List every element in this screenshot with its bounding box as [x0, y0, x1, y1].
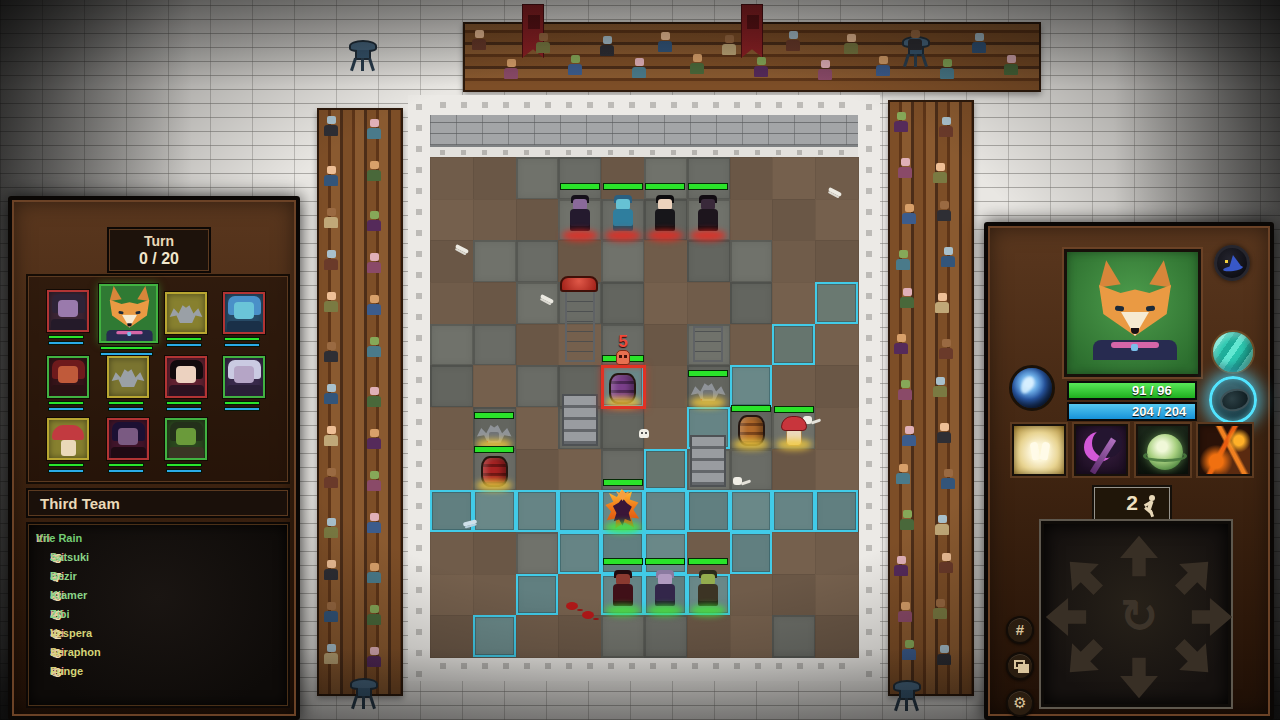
combat-log[interactable]: Itri : Vile RainItri -5 ⊕ SatsukiItri -7…	[26, 522, 290, 708]
movement-highlight-tile[interactable]	[558, 490, 601, 532]
floor-tile	[687, 282, 731, 325]
turn-counter: Turn 0 / 20	[107, 227, 211, 273]
floor-tile	[430, 615, 474, 658]
floor-tile	[601, 240, 645, 283]
skullbone-decoration	[733, 477, 749, 487]
portrait-gargoyle-a[interactable]	[165, 292, 207, 334]
hp-value: 91 / 96	[1132, 383, 1172, 398]
move-arrow-n[interactable]	[1118, 535, 1160, 577]
sphere-ability-icon[interactable]	[1136, 424, 1190, 476]
portrait-hp-bar	[166, 401, 202, 405]
wizard-hat-button[interactable]	[1214, 245, 1250, 281]
move-arrow-s[interactable]	[1118, 657, 1160, 699]
log-entry: Itri -5 ⊕ Zibi	[50, 608, 290, 624]
floor-tile	[815, 574, 859, 617]
active-character-portrait[interactable]	[1064, 249, 1201, 377]
arena-border-bottom	[430, 657, 858, 681]
arena-back-wall	[430, 115, 858, 147]
target-info: 5	[596, 335, 650, 365]
floor-tile	[772, 449, 816, 492]
damage-preview-number: 5	[596, 332, 650, 352]
spectator-stand-top	[463, 22, 1041, 92]
floor-tile	[687, 449, 731, 492]
floor-tile	[558, 615, 602, 658]
floor-tile	[644, 240, 688, 283]
floor-tile	[772, 282, 816, 325]
floor-tile	[644, 282, 688, 325]
character-control-panel: 91 / 96 204 / 204 2 ↻ # ⚙	[984, 222, 1274, 720]
floor-tile	[473, 574, 517, 617]
floor-tile	[815, 615, 859, 658]
wizard-hat-brim	[1223, 265, 1244, 273]
portrait-hp-bar	[224, 401, 260, 405]
focus-orb-icon[interactable]	[1209, 376, 1257, 424]
movement-highlight-tile[interactable]	[601, 490, 644, 532]
floor-tile	[558, 199, 602, 242]
move-arrow-w[interactable]	[1045, 596, 1087, 638]
floor-tile	[516, 282, 560, 325]
floor-tile	[815, 199, 859, 242]
portrait-pale-elf[interactable]	[223, 356, 265, 398]
floor-tile	[644, 199, 688, 242]
floor-tile	[558, 365, 602, 408]
movement-highlight-tile[interactable]	[730, 532, 773, 574]
floor-tile	[687, 615, 731, 658]
floor-tile	[815, 532, 859, 575]
floor-tile	[772, 615, 816, 658]
portrait-mp-bar	[224, 343, 260, 347]
floor-tile	[601, 615, 645, 658]
floor-tile	[430, 324, 474, 367]
floor-tile	[644, 324, 688, 367]
portrait-hp-bar	[48, 335, 84, 339]
floor-tile	[430, 407, 474, 450]
floor-tile	[473, 240, 517, 283]
axe-ability-icon[interactable]	[1074, 424, 1128, 476]
floor-tile	[516, 324, 560, 367]
skullbone-decoration	[803, 416, 819, 426]
portrait-siren[interactable]	[223, 292, 265, 334]
floor-tile	[430, 574, 474, 617]
portrait-vampire[interactable]	[107, 418, 149, 460]
movement-highlight-tile[interactable]	[687, 490, 730, 532]
floor-tile	[516, 157, 560, 200]
floor-tile	[516, 532, 560, 575]
floor-tile	[815, 240, 859, 283]
movement-highlight-tile[interactable]	[772, 490, 815, 532]
movement-highlight-tile[interactable]	[558, 532, 601, 574]
game-screen: 5 Turn 0 / 20 Third Team Itri : Vile Rai…	[0, 0, 1280, 720]
floor-tile	[730, 324, 774, 367]
floor-tile	[473, 365, 517, 408]
floor-tile	[772, 407, 816, 450]
floor-tile	[473, 532, 517, 575]
blood-decoration	[582, 611, 594, 619]
hp-bar: 91 / 96	[1067, 381, 1197, 400]
movement-points-box: 2	[1094, 487, 1170, 521]
wizard-hat-star	[1225, 260, 1228, 263]
move-arrow-se[interactable]	[1164, 628, 1223, 687]
floor-tile	[772, 199, 816, 242]
floor-tile	[687, 240, 731, 283]
floor-tile	[558, 282, 602, 325]
portrait-mp-bar	[108, 469, 144, 473]
floor-tile	[430, 365, 474, 408]
floor-tile	[644, 365, 688, 408]
movement-highlight-tile[interactable]	[644, 449, 687, 491]
movement-highlight-tile[interactable]	[601, 532, 644, 574]
movement-highlight-tile[interactable]	[644, 574, 687, 616]
floor-tile	[516, 407, 560, 450]
floor-tile	[772, 240, 816, 283]
portrait-mp-bar	[166, 469, 202, 473]
movement-highlight-tile[interactable]	[601, 574, 644, 616]
portrait-mushroom[interactable]	[47, 418, 89, 460]
floor-tile	[772, 157, 816, 200]
floor-tile	[430, 449, 474, 492]
portrait-mp-bar	[108, 407, 144, 411]
movement-highlight-tile[interactable]	[516, 490, 559, 532]
arena-border-left	[408, 95, 430, 681]
movement-highlight-tile[interactable]	[644, 490, 687, 532]
turn-label: Turn	[109, 233, 209, 249]
portrait-mp-bar	[166, 407, 202, 411]
movement-highlight-tile[interactable]	[473, 490, 516, 532]
log-entry: Itri -7 ⊕ Bezir	[50, 570, 290, 586]
movement-highlight-tile[interactable]	[516, 574, 559, 616]
floor-tile	[430, 240, 474, 283]
layers-button[interactable]	[1006, 652, 1034, 680]
floor-tile	[730, 240, 774, 283]
movement-dpad: ↻	[1041, 521, 1231, 707]
movement-highlight-tile[interactable]	[730, 490, 773, 532]
floor-tile	[730, 199, 774, 242]
floor-tile	[558, 449, 602, 492]
floor-tile	[558, 574, 602, 617]
rotate-icon[interactable]: ↻	[1109, 587, 1169, 647]
floor-tile	[644, 157, 688, 200]
floor-tile	[601, 449, 645, 492]
portrait-hp-bar	[166, 463, 202, 467]
floor-tile	[815, 449, 859, 492]
movement-points-value: 2	[1126, 491, 1138, 515]
floor-tile	[730, 615, 774, 658]
skull-icon	[616, 350, 630, 365]
log-entry: Itri -3 ⊕ Funge	[50, 665, 290, 681]
grid-toggle-button[interactable]: #	[1006, 616, 1034, 644]
arena-border-right	[858, 95, 880, 681]
portrait-hp-bar	[48, 401, 84, 405]
portrait-shade[interactable]	[47, 290, 89, 332]
portrait-hp-bar	[166, 337, 202, 341]
floor-tile	[730, 407, 774, 450]
fox-portrait-art	[1085, 262, 1185, 358]
floor-tile	[430, 199, 474, 242]
portrait-demoness[interactable]	[47, 356, 89, 398]
portrait-hp-bar	[48, 463, 84, 467]
floor-tile	[644, 615, 688, 658]
portrait-hp-bar	[100, 346, 153, 350]
log-entry: Itri -3 ⊕ Kiamer	[50, 589, 290, 605]
move-arrow-nw[interactable]	[1054, 546, 1113, 605]
floor-tile	[730, 282, 774, 325]
gear-button[interactable]: ⚙	[1006, 689, 1034, 717]
floor-tile	[772, 574, 816, 617]
floor-tile	[473, 282, 517, 325]
floor-tile	[516, 240, 560, 283]
portrait-hp-bar	[108, 463, 144, 467]
floor-tile	[772, 532, 816, 575]
movement-highlight-tile[interactable]	[730, 365, 773, 407]
gem-orb-icon[interactable]	[1211, 330, 1255, 374]
floor-tile	[430, 157, 474, 200]
movement-highlight-tile[interactable]	[772, 324, 815, 366]
movement-highlight-tile[interactable]	[473, 615, 516, 657]
movement-highlight-tile[interactable]	[815, 282, 858, 324]
mp-value: 204 / 204	[1132, 404, 1186, 419]
portrait-mp-bar	[224, 407, 260, 411]
portrait-orc[interactable]	[165, 418, 207, 460]
portrait-raven-lady[interactable]	[165, 356, 207, 398]
log-header-line: Itri : Vile Rain	[36, 532, 286, 548]
fox-mini-art	[102, 287, 157, 340]
movement-highlight-tile[interactable]	[687, 407, 730, 449]
floor-tile	[473, 324, 517, 367]
arena-border-top	[430, 95, 858, 115]
move-arrow-ne[interactable]	[1164, 546, 1223, 605]
portrait-itri-fox[interactable]	[99, 284, 158, 343]
floor-tile	[687, 157, 731, 200]
floor-tile	[516, 365, 560, 408]
turn-value: 0 / 20	[109, 250, 209, 268]
floor-tile	[687, 199, 731, 242]
floor-tile	[558, 407, 602, 450]
portrait-mp-bar	[48, 469, 84, 473]
runner-icon	[1142, 495, 1158, 515]
team-portraits-box	[26, 274, 290, 484]
floor-tile	[430, 282, 474, 325]
floor-tile	[473, 199, 517, 242]
move-arrow-sw[interactable]	[1054, 628, 1113, 687]
floor-tile	[430, 532, 474, 575]
floor-tile	[516, 449, 560, 492]
floor-tile	[516, 615, 560, 658]
portrait-mp-bar	[48, 341, 84, 345]
floor-tile	[815, 365, 859, 408]
spirit-orb-icon[interactable]	[1009, 365, 1055, 411]
floor-tile	[473, 407, 517, 450]
floor-tile	[601, 199, 645, 242]
blood-decoration	[566, 602, 578, 610]
arena-wall-ledge	[430, 147, 858, 157]
lava-ability-icon[interactable]	[1198, 424, 1252, 476]
floor-tile	[772, 365, 816, 408]
floor-tile	[558, 157, 602, 200]
floor-tile	[601, 157, 645, 200]
log-entry: Itri -2 ⊕ Vespera	[50, 627, 290, 643]
floor-tile	[730, 574, 774, 617]
portrait-hp-bar	[108, 401, 144, 405]
log-entry: Itri -5 ⊕ Satsuki	[50, 551, 290, 567]
log-entry: Itri -3 ⊕ Seraphon	[50, 646, 290, 662]
floor-tile	[687, 532, 731, 575]
floor-tile	[558, 240, 602, 283]
move-arrow-e[interactable]	[1191, 596, 1233, 638]
floor-tile	[815, 324, 859, 367]
target-selection-frame[interactable]	[601, 365, 646, 409]
floor-tile	[516, 199, 560, 242]
floor-tile	[687, 324, 731, 367]
portrait-mp-bar	[166, 343, 202, 347]
floor-tile	[815, 407, 859, 450]
movement-highlight-tile[interactable]	[687, 574, 730, 616]
floor-tile	[601, 407, 645, 450]
skull-decoration	[639, 429, 649, 438]
floor-tile	[730, 157, 774, 200]
team-title: Third Team	[28, 490, 288, 512]
battle-info-panel: Turn 0 / 20 Third Team Itri : Vile RainI…	[8, 196, 300, 720]
spectator-stand-left	[317, 108, 403, 696]
movement-highlight-tile[interactable]	[644, 532, 687, 574]
mp-bar: 204 / 204	[1067, 402, 1197, 421]
floor-tile	[473, 157, 517, 200]
portrait-mp-bar	[48, 407, 84, 411]
portrait-gargoyle-b[interactable]	[107, 356, 149, 398]
floor-tile	[601, 282, 645, 325]
heal-ability-icon[interactable]	[1012, 424, 1066, 476]
floor-tile	[687, 365, 731, 408]
spectator-stand-right	[888, 100, 974, 696]
portrait-hp-bar	[224, 337, 260, 341]
team-header: Third Team	[26, 488, 290, 518]
floor-tile	[473, 449, 517, 492]
movement-highlight-tile[interactable]	[815, 490, 858, 532]
floor-tile	[644, 407, 688, 450]
